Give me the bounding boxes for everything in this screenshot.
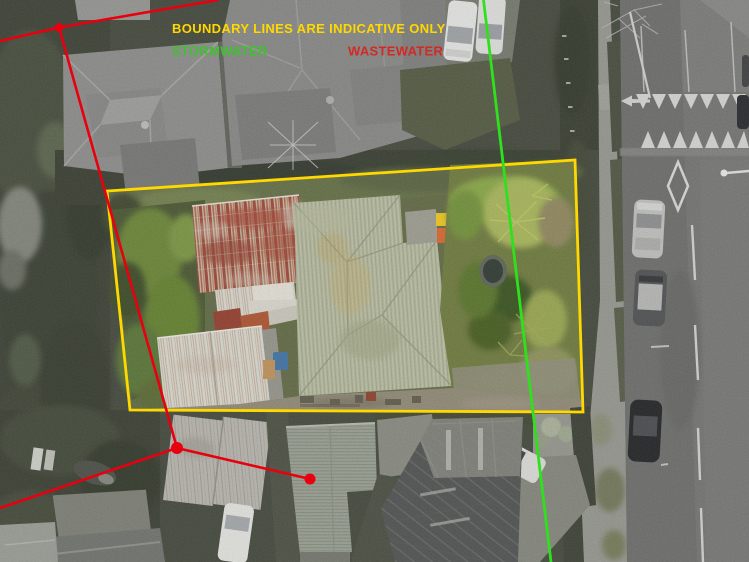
svg-text:BOUNDARY LINES ARE INDICATIVE: BOUNDARY LINES ARE INDICATIVE ONLY xyxy=(172,21,446,36)
svg-text:STORMWATER: STORMWATER xyxy=(172,44,268,59)
svg-text:WASTEWATER: WASTEWATER xyxy=(348,44,444,59)
